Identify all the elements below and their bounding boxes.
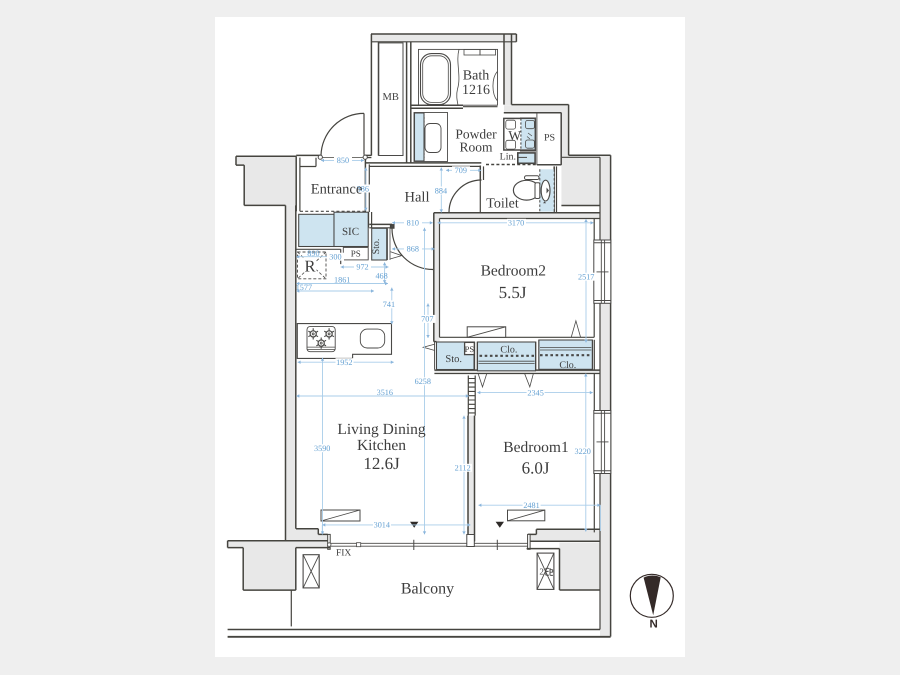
svg-text:850: 850 xyxy=(337,156,349,165)
svg-text:707: 707 xyxy=(421,315,433,324)
svg-text:1216: 1216 xyxy=(462,83,490,98)
svg-text:Lin.: Lin. xyxy=(500,152,516,163)
svg-text:5.5J: 5.5J xyxy=(499,283,527,302)
svg-text:PS: PS xyxy=(544,133,555,144)
svg-text:2481: 2481 xyxy=(523,501,539,510)
svg-text:MB: MB xyxy=(383,92,399,103)
svg-text:468: 468 xyxy=(375,271,387,280)
svg-text:300: 300 xyxy=(329,253,341,262)
svg-text:W: W xyxy=(508,128,521,143)
svg-text:884: 884 xyxy=(435,186,447,195)
svg-text:PS: PS xyxy=(351,249,361,259)
svg-text:741: 741 xyxy=(383,300,395,309)
svg-text:PS: PS xyxy=(465,344,475,354)
svg-text:Toilet: Toilet xyxy=(486,196,519,211)
svg-text:3170: 3170 xyxy=(508,219,524,228)
svg-text:2112: 2112 xyxy=(455,464,471,473)
svg-text:Balcony: Balcony xyxy=(401,580,454,597)
svg-text:3014: 3014 xyxy=(374,521,390,530)
svg-text:FIX: FIX xyxy=(336,549,351,559)
svg-text:3220: 3220 xyxy=(575,447,591,456)
svg-text:N: N xyxy=(650,619,658,631)
svg-text:R: R xyxy=(304,256,315,275)
svg-text:SIC: SIC xyxy=(342,226,359,238)
svg-text:2517: 2517 xyxy=(578,273,594,282)
svg-text:3590: 3590 xyxy=(314,444,330,453)
svg-text:Room: Room xyxy=(459,140,493,155)
svg-text:868: 868 xyxy=(407,245,419,254)
svg-text:Kitchen: Kitchen xyxy=(357,437,406,454)
svg-text:Hall: Hall xyxy=(405,190,430,206)
svg-text:1861: 1861 xyxy=(334,276,350,285)
svg-text:Living Dining: Living Dining xyxy=(337,421,426,438)
svg-text:Sto.: Sto. xyxy=(371,239,382,255)
svg-text:Entrance: Entrance xyxy=(311,181,363,197)
svg-text:Sto.: Sto. xyxy=(445,354,462,365)
svg-text:Bath: Bath xyxy=(463,68,489,83)
svg-text:3516: 3516 xyxy=(377,388,393,397)
svg-text:Bedroom1: Bedroom1 xyxy=(503,439,568,456)
svg-text:12.6J: 12.6J xyxy=(363,454,400,473)
svg-text:1952: 1952 xyxy=(336,358,352,367)
svg-text:1577: 1577 xyxy=(296,283,312,292)
svg-text:Bedroom2: Bedroom2 xyxy=(481,262,546,279)
svg-text:6258: 6258 xyxy=(415,377,431,386)
svg-text:972: 972 xyxy=(356,263,368,272)
svg-text:Clo.: Clo. xyxy=(559,360,576,371)
svg-text:810: 810 xyxy=(407,219,419,228)
svg-text:709: 709 xyxy=(455,166,467,175)
svg-text:Clo.: Clo. xyxy=(500,344,517,355)
svg-text:2345: 2345 xyxy=(527,388,543,397)
svg-text:2: 2 xyxy=(539,567,544,577)
svg-text:6.0J: 6.0J xyxy=(522,459,550,478)
